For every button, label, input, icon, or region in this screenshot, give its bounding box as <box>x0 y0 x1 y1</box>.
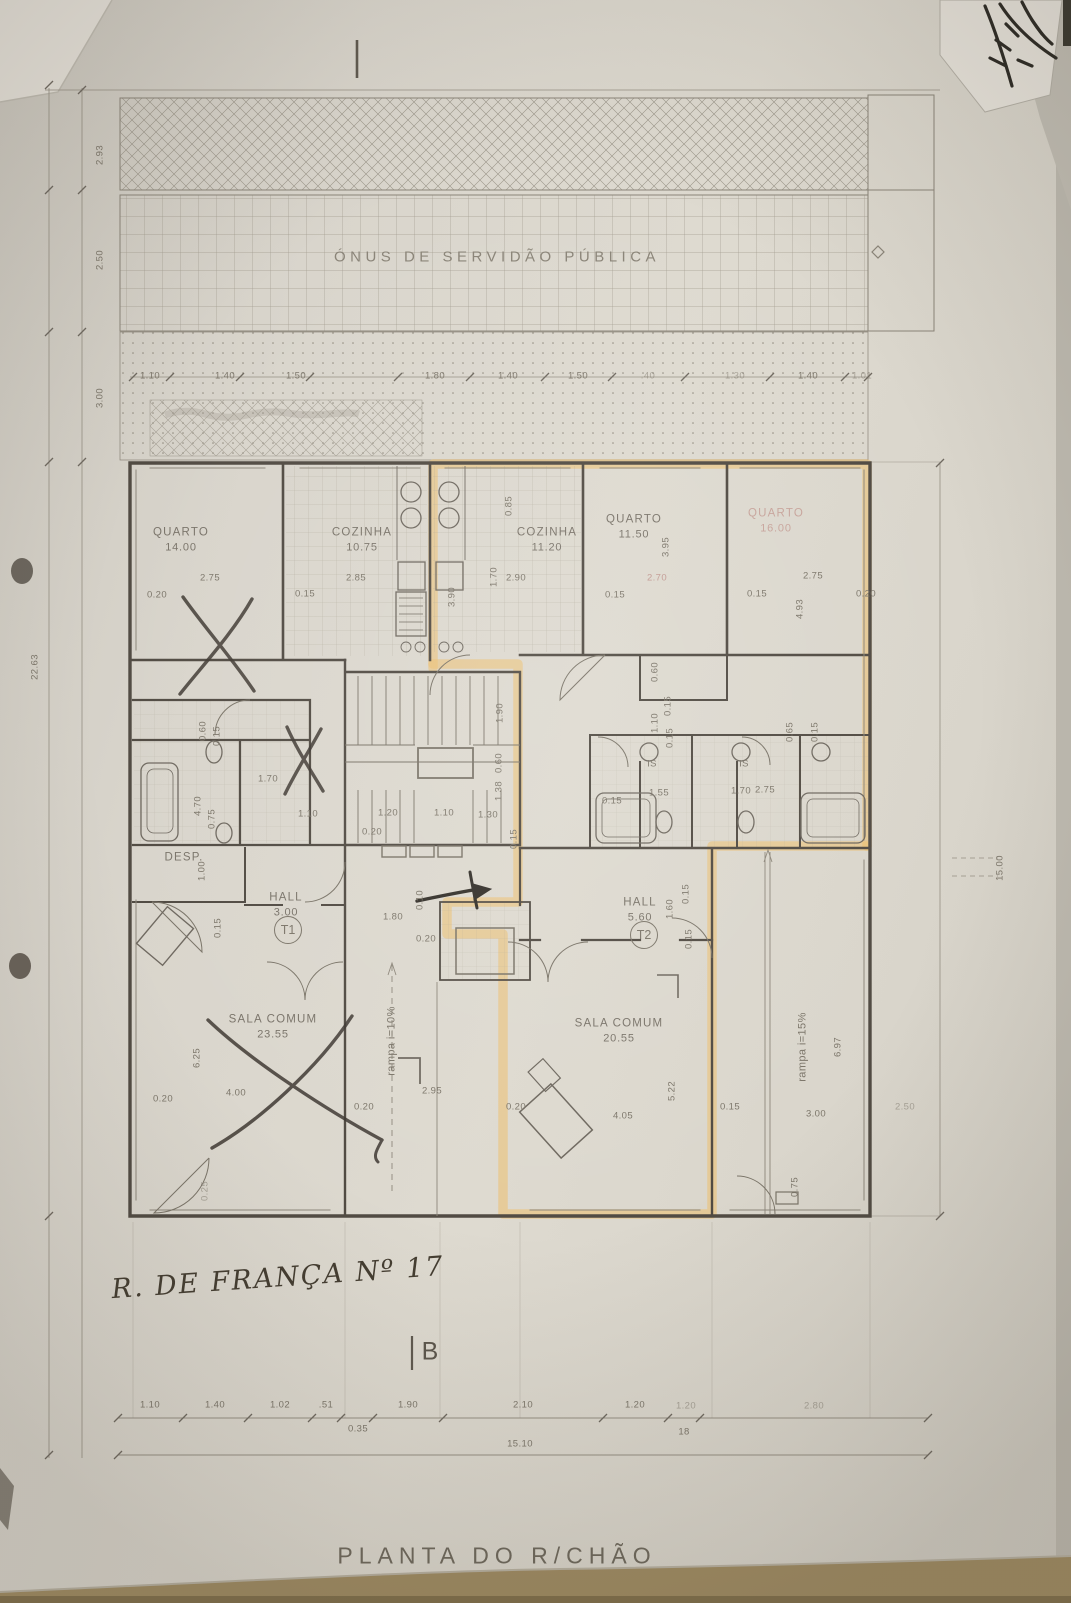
dim-label: 3.90 <box>447 587 457 607</box>
punch-holes <box>9 558 33 979</box>
dim-label: 4.70 <box>193 796 203 816</box>
room-area: 11.20 <box>517 540 577 554</box>
dim-label: 1.40 <box>798 371 818 381</box>
dim-label: 1.01 <box>852 371 872 381</box>
dim-label: 0.15 <box>720 1102 740 1112</box>
room-name: SALA COMUM <box>575 1017 664 1029</box>
dim-label: 0.15 <box>810 722 820 742</box>
dim-label: 0.75 <box>790 1177 800 1197</box>
dim-label: 2.85 <box>346 573 366 583</box>
dim-label: 1.60 <box>665 899 675 919</box>
room-label: QUARTO11.50 <box>606 512 662 541</box>
dim-label: 18 <box>678 1427 689 1437</box>
floorplan-linework <box>0 0 1071 1603</box>
dim-label: 1.10 <box>140 1400 160 1410</box>
servitude-bands <box>120 95 934 460</box>
dim-label: 0.10 <box>415 890 425 910</box>
dim-label: 1.70 <box>489 567 499 587</box>
elevator <box>418 748 473 778</box>
room-name: COZINHA <box>332 526 392 538</box>
dim-label: 0.20 <box>153 1094 173 1104</box>
dim-label: 1.90 <box>495 703 505 723</box>
dim-label: rampa i=10% <box>387 1006 398 1076</box>
room-label: DESP. <box>164 851 203 866</box>
dim-label: 0.15 <box>509 829 519 849</box>
dim-label: 0.20 <box>147 590 167 600</box>
dim-label: 0.35 <box>348 1424 368 1434</box>
dim-label: .51 <box>319 1400 333 1410</box>
dim-label: 1.80 <box>425 371 445 381</box>
dim-label: 1.10 <box>298 809 318 819</box>
room-label: COZINHA10.75 <box>332 525 392 554</box>
dim-label: 2.70 <box>647 573 667 583</box>
dim-label: 2.10 <box>513 1400 533 1410</box>
dim-label: 1.20 <box>676 1401 696 1411</box>
dim-label: 6.25 <box>192 1048 202 1068</box>
dim-label: 0.60 <box>198 721 208 741</box>
dim-label: 0.15 <box>665 728 675 748</box>
room-name: QUARTO <box>606 513 662 525</box>
dim-label: 0.20 <box>416 934 436 944</box>
dim-label: rampa i=15% <box>798 1012 809 1082</box>
dim-label: 1.30 <box>478 810 498 820</box>
dim-label: 1.70 <box>258 774 278 784</box>
dim-label: 1.50 <box>286 371 306 381</box>
dim-label: 0.75 <box>207 809 217 829</box>
dim-label: 2.95 <box>422 1086 442 1096</box>
floorplan-photo: ÓNUS DE SERVIDÃO PÚBLICA R. DE FRANÇA Nº… <box>0 0 1071 1603</box>
room-name: QUARTO <box>748 507 804 519</box>
section-letter: B <box>422 1338 439 1367</box>
room-label: SALA COMUM20.55 <box>575 1016 664 1045</box>
dim-label: 1.38 <box>494 781 504 801</box>
dim-label: 0.15 <box>681 884 691 904</box>
dim-label: IS <box>739 759 749 769</box>
dim-label: 4.93 <box>795 599 805 619</box>
dim-label: 0.15 <box>663 696 673 716</box>
room-area: 14.00 <box>153 540 209 554</box>
dim-label: 1.40 <box>215 371 235 381</box>
room-label: QUARTO14.00 <box>153 525 209 554</box>
dim-label: 15.00 <box>995 855 1005 881</box>
room-label: SALA COMUM23.55 <box>229 1012 318 1041</box>
room-area: 20.55 <box>575 1031 664 1045</box>
unit-badge-t1: T1 <box>274 916 302 944</box>
room-name: HALL <box>623 896 657 908</box>
dim-label: 4.05 <box>613 1111 633 1121</box>
room-area: 16.00 <box>748 521 804 535</box>
dim-label: .40 <box>641 371 655 381</box>
room-area: 10.75 <box>332 540 392 554</box>
dim-label: 1.55 <box>649 788 669 798</box>
dim-label: 2.80 <box>804 1401 824 1411</box>
room-label: COZINHA11.20 <box>517 525 577 554</box>
room-area: 11.50 <box>606 527 662 541</box>
dim-label: 3.00 <box>95 388 105 408</box>
dim-label: 0.25 <box>200 1181 210 1201</box>
dim-label: 0.85 <box>504 496 514 516</box>
dim-label: 1.30 <box>725 371 745 381</box>
dim-label: 0.20 <box>354 1102 374 1112</box>
dim-label: 3.00 <box>806 1109 826 1119</box>
dim-label: 0.20 <box>506 1102 526 1112</box>
room-label: HALL5.60 <box>623 895 657 924</box>
dim-label: 1.10 <box>140 371 160 381</box>
dim-label: 5.22 <box>667 1081 677 1101</box>
room-label: QUARTO16.00 <box>748 506 804 535</box>
dim-label: 0.20 <box>362 827 382 837</box>
plan-caption: PLANTA DO R/CHÃO <box>337 1543 656 1570</box>
dim-label: 1.70 <box>731 786 751 796</box>
room-area: 23.55 <box>229 1027 318 1041</box>
dim-label: 15.10 <box>507 1439 533 1449</box>
dim-label: 1.90 <box>398 1400 418 1410</box>
dim-label: 4.00 <box>226 1088 246 1098</box>
room-name: QUARTO <box>153 526 209 538</box>
dim-label: 0.15 <box>213 918 223 938</box>
dim-label: 1.80 <box>383 912 403 922</box>
dim-label: 6.97 <box>833 1037 843 1057</box>
unit-badge-t2: T2 <box>630 921 658 949</box>
dim-label: 1.50 <box>568 371 588 381</box>
dim-label: 0.15 <box>747 589 767 599</box>
dim-label: 2.50 <box>95 250 105 270</box>
dim-label: 0.15 <box>602 796 622 806</box>
dim-label: 2.75 <box>755 785 775 795</box>
dim-label: 0.20 <box>856 589 876 599</box>
dim-label: 0.15 <box>212 726 222 746</box>
dim-label: 0.60 <box>494 753 504 773</box>
dim-label: 2.50 <box>895 1102 915 1112</box>
dim-label: 22.63 <box>30 654 40 680</box>
pencil-x-marks <box>180 597 382 1162</box>
servitude-label: ÓNUS DE SERVIDÃO PÚBLICA <box>334 249 660 266</box>
dim-label: 1.10 <box>650 713 660 733</box>
room-name: COZINHA <box>517 526 577 538</box>
dim-label: 1.02 <box>270 1400 290 1410</box>
dim-label: 1.40 <box>498 371 518 381</box>
dim-label: 2.90 <box>506 573 526 583</box>
dim-label: IS <box>647 759 657 769</box>
dim-label: 1.10 <box>434 808 454 818</box>
dim-label: 0.15 <box>684 929 694 949</box>
dim-label: 2.93 <box>95 145 105 165</box>
dim-label: 1.20 <box>625 1400 645 1410</box>
dim-label: 2.75 <box>200 573 220 583</box>
dim-label: 0.60 <box>650 662 660 682</box>
room-name: DESP. <box>164 852 203 864</box>
dim-label: 0.15 <box>295 589 315 599</box>
dim-label: 1.40 <box>205 1400 225 1410</box>
dim-label: 0.15 <box>605 590 625 600</box>
dim-label: 3.95 <box>661 537 671 557</box>
dim-label: 1.20 <box>378 808 398 818</box>
room-name: SALA COMUM <box>229 1013 318 1025</box>
dim-label: 0.65 <box>785 722 795 742</box>
dim-label: 2.75 <box>803 571 823 581</box>
room-name: HALL <box>269 891 303 903</box>
